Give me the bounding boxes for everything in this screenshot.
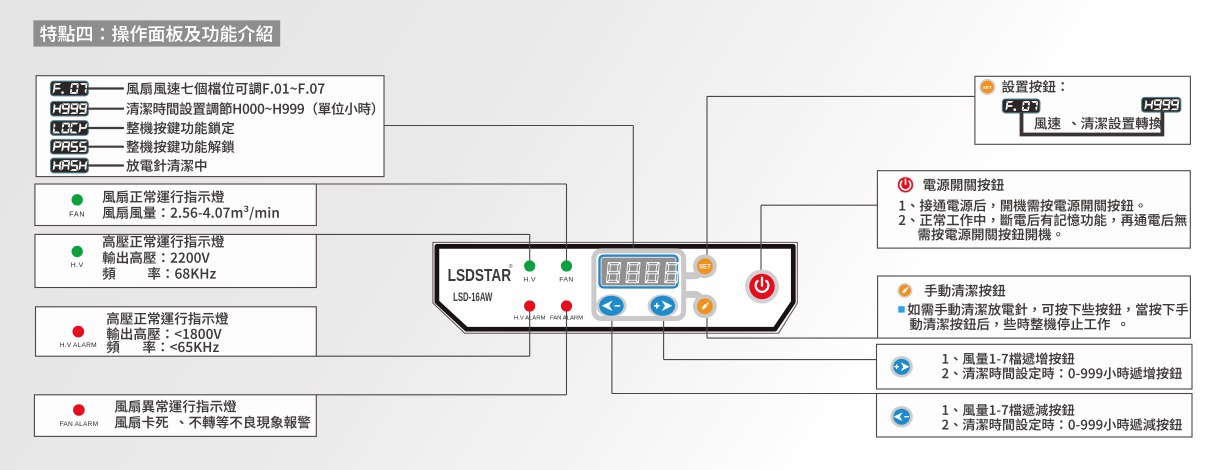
svg-text:LSD-16AW: LSD-16AW bbox=[453, 290, 493, 304]
svg-text:SET: SET bbox=[699, 264, 711, 271]
svg-text:FAN: FAN bbox=[559, 276, 573, 283]
svg-text:FAN ALARM: FAN ALARM bbox=[59, 421, 98, 428]
svg-text:H.V ALARM: H.V ALARM bbox=[60, 342, 97, 349]
svg-text:H.V: H.V bbox=[71, 262, 84, 269]
svg-text:FAN: FAN bbox=[69, 209, 85, 218]
svg-text:SET: SET bbox=[983, 85, 992, 90]
svg-text:FAN ALARM: FAN ALARM bbox=[550, 316, 583, 322]
svg-text:LSDSTAR: LSDSTAR bbox=[448, 265, 512, 285]
svg-text:®: ® bbox=[509, 263, 513, 270]
svg-text:H.V: H.V bbox=[523, 276, 536, 283]
svg-text:H.V ALARM: H.V ALARM bbox=[514, 316, 546, 322]
